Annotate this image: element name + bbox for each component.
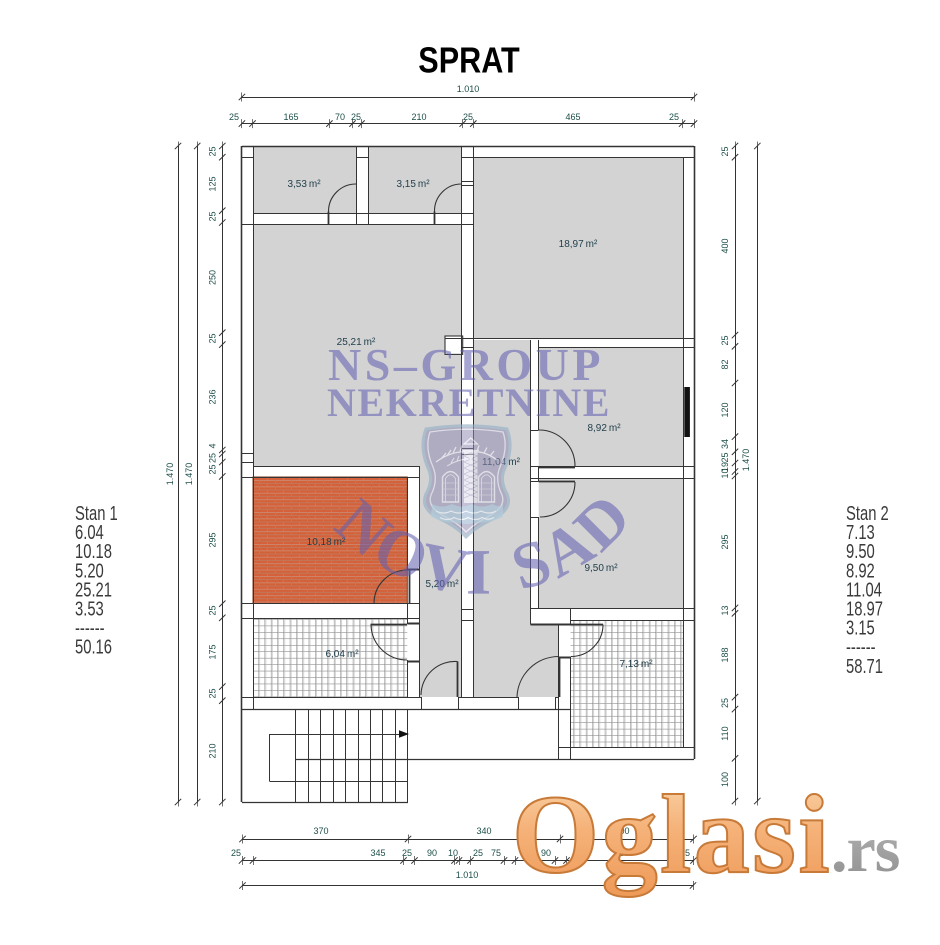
svg-text:25: 25 (208, 464, 218, 474)
svg-text:50.16: 50.16 (75, 636, 112, 659)
svg-text:188: 188 (720, 647, 730, 662)
svg-text:210: 210 (208, 743, 218, 758)
svg-text:1.470: 1.470 (165, 463, 175, 486)
svg-text:25: 25 (720, 452, 730, 462)
svg-text:25: 25 (720, 698, 730, 708)
svg-text:70: 70 (335, 112, 345, 122)
svg-text:25: 25 (720, 335, 730, 345)
svg-text:340: 340 (476, 826, 491, 836)
svg-text:400: 400 (720, 238, 730, 253)
svg-text:165: 165 (283, 112, 298, 122)
svg-text:25: 25 (473, 848, 483, 858)
svg-text:10: 10 (720, 468, 730, 478)
svg-text:370: 370 (313, 826, 328, 836)
svg-text:3,53 m²: 3,53 m² (287, 179, 321, 190)
svg-text:295: 295 (720, 534, 730, 549)
svg-text:250: 250 (208, 270, 218, 285)
svg-text:236: 236 (208, 389, 218, 404)
svg-text:25: 25 (720, 146, 730, 156)
svg-text:175: 175 (208, 644, 218, 659)
svg-text:25: 25 (402, 848, 412, 858)
svg-text:295: 295 (208, 532, 218, 547)
svg-text:25: 25 (669, 112, 679, 122)
svg-text:Oglasi: Oglasi (512, 773, 832, 897)
svg-text:25: 25 (208, 453, 218, 463)
svg-text:465: 465 (565, 112, 580, 122)
svg-text:25: 25 (208, 688, 218, 698)
svg-text:210: 210 (411, 112, 426, 122)
svg-text:25: 25 (463, 112, 473, 122)
svg-text:NEKRETNINE: NEKRETNINE (327, 380, 611, 425)
svg-text:25: 25 (229, 112, 239, 122)
svg-text:25: 25 (351, 112, 361, 122)
svg-text:7,13 m²: 7,13 m² (619, 659, 653, 670)
svg-text:25: 25 (208, 605, 218, 615)
svg-text:75: 75 (491, 848, 501, 858)
svg-text:1.010: 1.010 (456, 870, 479, 880)
svg-text:3,15 m²: 3,15 m² (396, 179, 430, 190)
svg-text:SPRAT: SPRAT (418, 41, 520, 81)
svg-text:1.470: 1.470 (184, 463, 194, 486)
svg-text:18,97 m²: 18,97 m² (559, 239, 598, 250)
svg-text:10: 10 (448, 848, 458, 858)
svg-text:58.71: 58.71 (846, 655, 883, 678)
svg-text:13: 13 (720, 605, 730, 615)
svg-text:1.470: 1.470 (741, 449, 751, 472)
svg-text:.rs: .rs (831, 813, 900, 886)
svg-text:90: 90 (427, 848, 437, 858)
svg-text:6,04 m²: 6,04 m² (325, 649, 359, 660)
svg-text:82: 82 (720, 359, 730, 369)
svg-text:25: 25 (231, 848, 241, 858)
svg-text:1.010: 1.010 (457, 84, 480, 94)
svg-text:25: 25 (208, 333, 218, 343)
svg-text:25: 25 (208, 211, 218, 221)
svg-text:110: 110 (720, 726, 730, 740)
svg-text:34: 34 (720, 439, 730, 449)
svg-text:4: 4 (208, 443, 218, 448)
svg-text:345: 345 (370, 848, 385, 858)
svg-text:25: 25 (208, 146, 218, 156)
svg-text:120: 120 (720, 402, 730, 417)
svg-text:125: 125 (208, 176, 218, 191)
